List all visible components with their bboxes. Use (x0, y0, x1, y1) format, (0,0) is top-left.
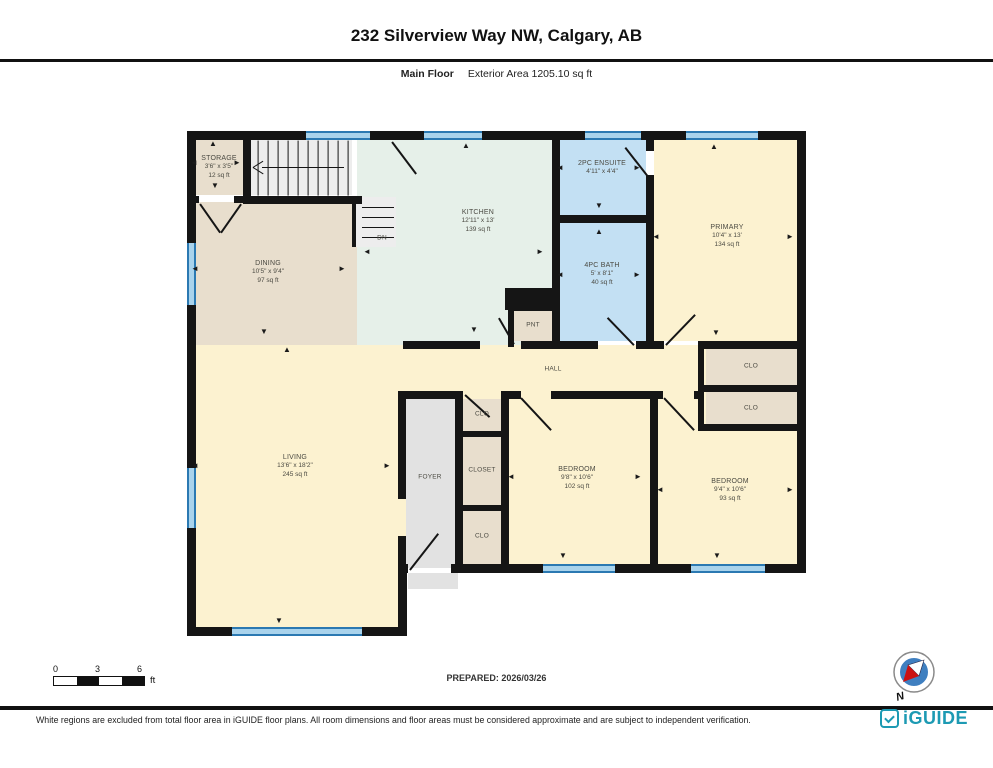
wall (698, 349, 704, 429)
dimension-arrow-icon: ► (536, 248, 544, 256)
dimension-arrow-icon: ► (338, 265, 346, 273)
wall (508, 305, 554, 311)
dimension-arrow-icon: ▲ (283, 346, 291, 354)
rdims: 5' x 8'1" (584, 270, 619, 278)
window (686, 131, 758, 140)
dimension-arrow-icon: ◄ (191, 265, 199, 273)
dimension-arrow-icon: ▲ (710, 143, 718, 151)
rdims: 10'5" x 9'4" (252, 268, 284, 276)
door-swing-line (267, 141, 268, 196)
dimension-arrow-icon: ► (786, 233, 794, 241)
wall (636, 341, 646, 349)
wall (455, 391, 463, 568)
wall (698, 341, 806, 349)
wall (552, 215, 646, 223)
rarea: 93 sq ft (711, 495, 749, 503)
dimension-arrow-icon: ◄ (507, 473, 515, 481)
dimension-arrow-icon: ▼ (595, 202, 603, 210)
footer-divider (0, 706, 993, 710)
disclaimer-text: White regions are excluded from total fl… (36, 715, 796, 725)
wall (463, 431, 501, 437)
room-annotation: CLO (744, 363, 758, 370)
dimension-arrow-icon: ► (633, 271, 641, 279)
rdims: 3'6" x 3'5" (201, 163, 237, 171)
floorplan-page: 232 Silverview Way NW, Calgary, AB Main … (0, 0, 993, 768)
rdims: 10'4" x 13' (710, 232, 743, 240)
rname: 2PC ENSUITE (578, 159, 626, 168)
dimension-arrow-icon: ▲ (595, 228, 603, 236)
wall (509, 391, 521, 399)
rarea: 102 sq ft (558, 483, 596, 491)
dimension-arrow-icon: ▲ (462, 142, 470, 150)
door-swing-line (257, 141, 258, 196)
wall (698, 385, 806, 392)
rname: DINING (252, 259, 284, 268)
door-swing-line (362, 207, 394, 208)
dimension-arrow-icon: ◄ (556, 164, 564, 172)
room-label: 2PC ENSUITE4'11" x 4'4" (578, 159, 626, 177)
wall (398, 564, 407, 636)
room-label: STORAGE3'6" x 3'5"12 sq ft (201, 154, 237, 180)
wall (646, 139, 654, 151)
wall (398, 536, 406, 570)
rarea: 134 sq ft (710, 241, 743, 249)
rdims: 9'8" x 10'6" (558, 474, 596, 482)
door-swing-line (287, 141, 288, 196)
wall (551, 391, 650, 399)
wall (646, 341, 664, 349)
room-label: PRIMARY10'4" x 13'134 sq ft (710, 223, 743, 249)
rname: BEDROOM (558, 465, 596, 474)
wall (352, 197, 356, 247)
dimension-arrow-icon: ▼ (260, 328, 268, 336)
window (691, 564, 765, 573)
room-label: BEDROOM9'8" x 10'6"102 sq ft (558, 465, 596, 491)
window (424, 131, 482, 140)
dimension-arrow-icon: ▼ (211, 182, 219, 190)
rname: PRIMARY (710, 223, 743, 232)
wall (187, 196, 199, 203)
rdims: 4'11" x 4'4" (578, 168, 626, 176)
dimension-arrow-icon: ▼ (559, 552, 567, 560)
rname: KITCHEN (462, 208, 495, 217)
floor-plan: STORAGE3'6" x 3'5"12 sq ftDINING10'5" x … (0, 0, 993, 768)
door-swing-line (307, 141, 308, 196)
room-label: KITCHEN12'11" x 13'139 sq ft (462, 208, 495, 234)
door-swing-line (317, 141, 318, 196)
rname: BEDROOM (711, 477, 749, 486)
room-annotation: HALL (544, 366, 561, 373)
compass-north-label: N (895, 690, 907, 704)
wall (698, 424, 806, 431)
room-label: LIVING13'6" x 18'2"245 sq ft (277, 453, 313, 479)
rarea: 139 sq ft (462, 226, 495, 234)
dimension-arrow-icon: ► (383, 462, 391, 470)
room-annotation: PNT (526, 322, 540, 329)
dimension-arrow-icon: ◄ (656, 486, 664, 494)
dimension-arrow-icon: ▼ (712, 329, 720, 337)
door-swing-line (362, 227, 394, 228)
room-annotation: CLOSET (468, 467, 495, 474)
wall (694, 391, 698, 399)
wall (398, 399, 406, 499)
room-area (560, 139, 646, 215)
wall (646, 175, 654, 223)
rarea: 40 sq ft (584, 279, 619, 287)
room-annotation: CLO (475, 533, 489, 540)
rname: STORAGE (201, 154, 237, 163)
wall (243, 196, 362, 204)
room-annotation: FOYER (418, 474, 441, 481)
door-swing-line (262, 167, 344, 168)
room-label: 4PC BATH5' x 8'1"40 sq ft (584, 261, 619, 287)
wall (243, 139, 251, 203)
compass-icon: N (888, 650, 940, 706)
wall (187, 131, 196, 636)
dimension-arrow-icon: ▼ (275, 617, 283, 625)
dimension-arrow-icon: ▲ (209, 140, 217, 148)
dimension-arrow-icon: ▼ (713, 552, 721, 560)
dimension-arrow-icon: ► (634, 473, 642, 481)
wall (646, 223, 654, 349)
dimension-arrow-icon: ◄ (556, 271, 564, 279)
door-swing-line (337, 141, 338, 196)
window (543, 564, 615, 573)
window (232, 627, 362, 636)
dimension-arrow-icon: ◄ (652, 233, 660, 241)
room-label: BEDROOM9'4" x 10'6"93 sq ft (711, 477, 749, 503)
wall (552, 341, 598, 349)
rarea: 97 sq ft (252, 277, 284, 285)
dimension-arrow-icon: ► (233, 159, 241, 167)
wall (463, 505, 501, 511)
room-annotation: DN (377, 235, 387, 242)
wall (521, 341, 552, 349)
rarea: 12 sq ft (201, 172, 237, 180)
dimension-arrow-icon: ▼ (470, 326, 478, 334)
window (585, 131, 641, 140)
rdims: 13'6" x 18'2" (277, 462, 313, 470)
floor-area (352, 197, 396, 247)
dimension-arrow-icon: ► (786, 486, 794, 494)
door-swing-line (362, 217, 394, 218)
wall (650, 391, 658, 564)
room-annotation: CLO (744, 405, 758, 412)
iguide-logo: iGUIDE (880, 708, 968, 729)
dimension-arrow-icon: ► (633, 164, 641, 172)
room-label: DINING10'5" x 9'4"97 sq ft (252, 259, 284, 285)
rname: LIVING (277, 453, 313, 462)
floor-area (193, 345, 398, 632)
wall (398, 391, 463, 399)
iguide-brand-name: iGUIDE (903, 708, 968, 729)
door-swing-line (327, 141, 328, 196)
iguide-logo-icon (880, 709, 899, 728)
window (306, 131, 370, 140)
wall (403, 341, 480, 349)
dimension-arrow-icon: ◄ (191, 462, 199, 470)
prepared-date: PREPARED: 2026/03/26 (0, 673, 993, 683)
rarea: 245 sq ft (277, 471, 313, 479)
window (187, 468, 196, 528)
door-swing-line (347, 141, 348, 196)
floor-area (408, 573, 458, 589)
wall (797, 131, 806, 572)
dimension-arrow-icon: ◄ (190, 159, 198, 167)
door-swing-line (297, 141, 298, 196)
rname: 4PC BATH (584, 261, 619, 270)
rdims: 9'4" x 10'6" (711, 486, 749, 494)
dimension-arrow-icon: ◄ (363, 248, 371, 256)
room-annotation: CLO (475, 411, 489, 418)
window (187, 243, 196, 305)
door-swing-line (277, 141, 278, 196)
rdims: 12'11" x 13' (462, 217, 495, 225)
